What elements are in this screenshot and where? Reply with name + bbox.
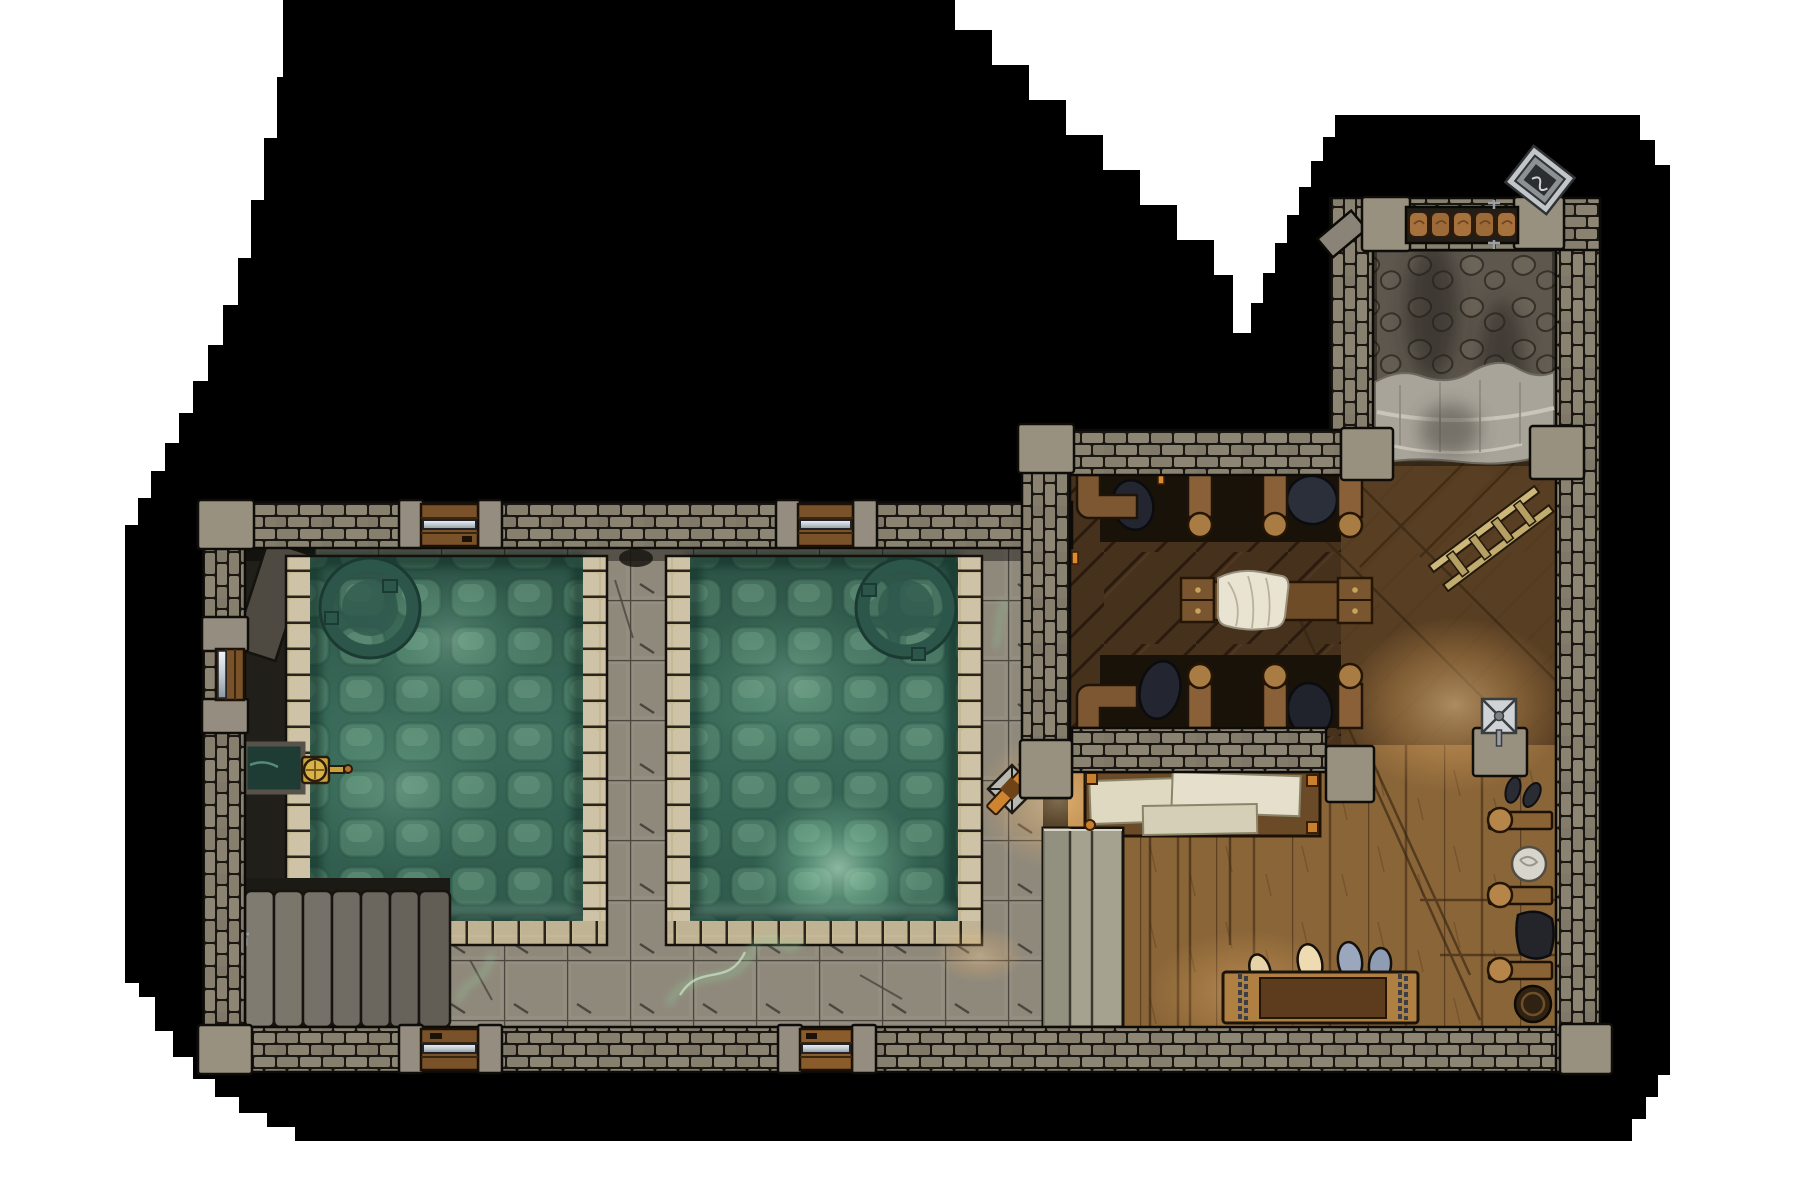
post-knob [1338, 513, 1362, 537]
door-latch [806, 1033, 817, 1039]
potion-bottle [1072, 552, 1078, 564]
stall-south-wall [1072, 728, 1326, 772]
bath-hall [205, 541, 1043, 1028]
corner-bracket [1086, 773, 1097, 784]
sconce-hub [1495, 712, 1504, 721]
stall-post [1188, 684, 1212, 728]
stair-step [332, 891, 361, 1027]
basket-shelf [1406, 200, 1518, 249]
post-knob [1263, 513, 1287, 537]
basket [1475, 212, 1494, 237]
basket [1409, 212, 1428, 237]
map-screenshot [0, 0, 1800, 1200]
door-north-west [421, 504, 478, 546]
valve-spout [329, 766, 344, 773]
corner-block [1530, 426, 1584, 479]
towel-table [1085, 772, 1320, 836]
soot-streak [1406, 240, 1458, 380]
stall-post [1263, 684, 1287, 728]
spout-tip [344, 765, 352, 773]
door-pillar [778, 1025, 802, 1073]
stall-post [1263, 473, 1287, 517]
door-south-east [800, 1029, 852, 1070]
door-west [216, 649, 244, 700]
ring-tab [862, 584, 876, 596]
stair-step [361, 891, 390, 1027]
door-pillar [202, 699, 248, 733]
post-knob [1338, 664, 1362, 688]
sconce-pin [1497, 730, 1502, 746]
pool-rim-west [666, 556, 690, 945]
screen-plank-shade [1043, 828, 1070, 1027]
stair-step [303, 891, 332, 1027]
pool-light [695, 600, 885, 760]
corner-block [1341, 428, 1393, 480]
tower-alcove [1373, 240, 1556, 464]
door-north-east [798, 504, 853, 546]
door-pillar [399, 500, 423, 548]
pool-rim-east [583, 556, 607, 945]
door-pillar [399, 1025, 423, 1073]
privacy-screen [1043, 820, 1123, 1027]
drawer-knob [1195, 587, 1201, 593]
door-south-west [421, 1029, 478, 1070]
door-latch [462, 536, 472, 542]
basket [1431, 212, 1450, 237]
stall-post [1188, 473, 1212, 517]
door-metal-bar [218, 651, 226, 698]
massage-table [1181, 571, 1372, 630]
door-latch [430, 1033, 442, 1039]
door-pillar [853, 500, 877, 548]
stair-step [390, 891, 419, 1027]
stair-step [419, 891, 450, 1027]
drain-disc [878, 580, 934, 636]
basket [1453, 212, 1472, 237]
drawer-knob [1195, 608, 1201, 614]
door-metal-bar [423, 520, 476, 529]
ring-tab [325, 612, 338, 624]
pool-rim-east [958, 556, 982, 945]
pool-east [666, 556, 982, 945]
post-knob [1263, 664, 1287, 688]
hanging-clothes-east [1516, 912, 1553, 959]
stall-post [1338, 684, 1362, 728]
door-metal-bar [423, 1044, 476, 1053]
walkway-stain [619, 549, 653, 567]
inflow-channel [245, 744, 303, 792]
corner-bracket [1307, 775, 1318, 786]
bench-panel [1260, 978, 1386, 1018]
drawer-knob [1352, 608, 1358, 614]
jar [1512, 847, 1546, 881]
stairs [245, 878, 450, 1027]
door-pillar [478, 1025, 502, 1073]
corner-block [1326, 746, 1374, 802]
peg-knob [1488, 883, 1512, 907]
post-knob [1188, 513, 1212, 537]
drawer-knob [1352, 587, 1358, 593]
corner-block [1020, 740, 1072, 798]
corner-block-sw [198, 1025, 252, 1074]
east-wall [1556, 198, 1600, 1072]
barrel [1515, 986, 1551, 1022]
door-metal-bar [802, 1044, 850, 1053]
battle-map-canvas [0, 0, 1800, 1200]
post-knob [1188, 664, 1212, 688]
door-pillar [852, 1025, 876, 1073]
ring-tab [383, 580, 397, 592]
pool-rim-south [666, 921, 982, 945]
north-wall [198, 502, 1072, 548]
pool-light [300, 705, 500, 875]
foam [692, 905, 956, 917]
screen-knob [1085, 820, 1095, 830]
curtain-shadow [1420, 404, 1480, 456]
basket [1497, 212, 1516, 237]
corner-block [1362, 197, 1410, 251]
peg-knob [1488, 808, 1512, 832]
door-pillar [202, 617, 248, 651]
ring-tab [912, 648, 925, 660]
corner-block-se [1560, 1024, 1612, 1074]
corner-block [1018, 424, 1074, 473]
west-wall [203, 502, 245, 1072]
light-spill [935, 927, 1025, 983]
corner-bracket [1307, 822, 1318, 833]
door-pillar [478, 500, 502, 548]
stair-step [245, 891, 274, 1027]
curtain [1375, 363, 1554, 464]
stair-step [274, 891, 303, 1027]
door-pillar [776, 500, 800, 548]
corner-block-nw [198, 500, 254, 549]
door-metal-bar [800, 520, 851, 529]
peg-knob [1488, 958, 1512, 982]
folded-towel [1143, 804, 1257, 835]
